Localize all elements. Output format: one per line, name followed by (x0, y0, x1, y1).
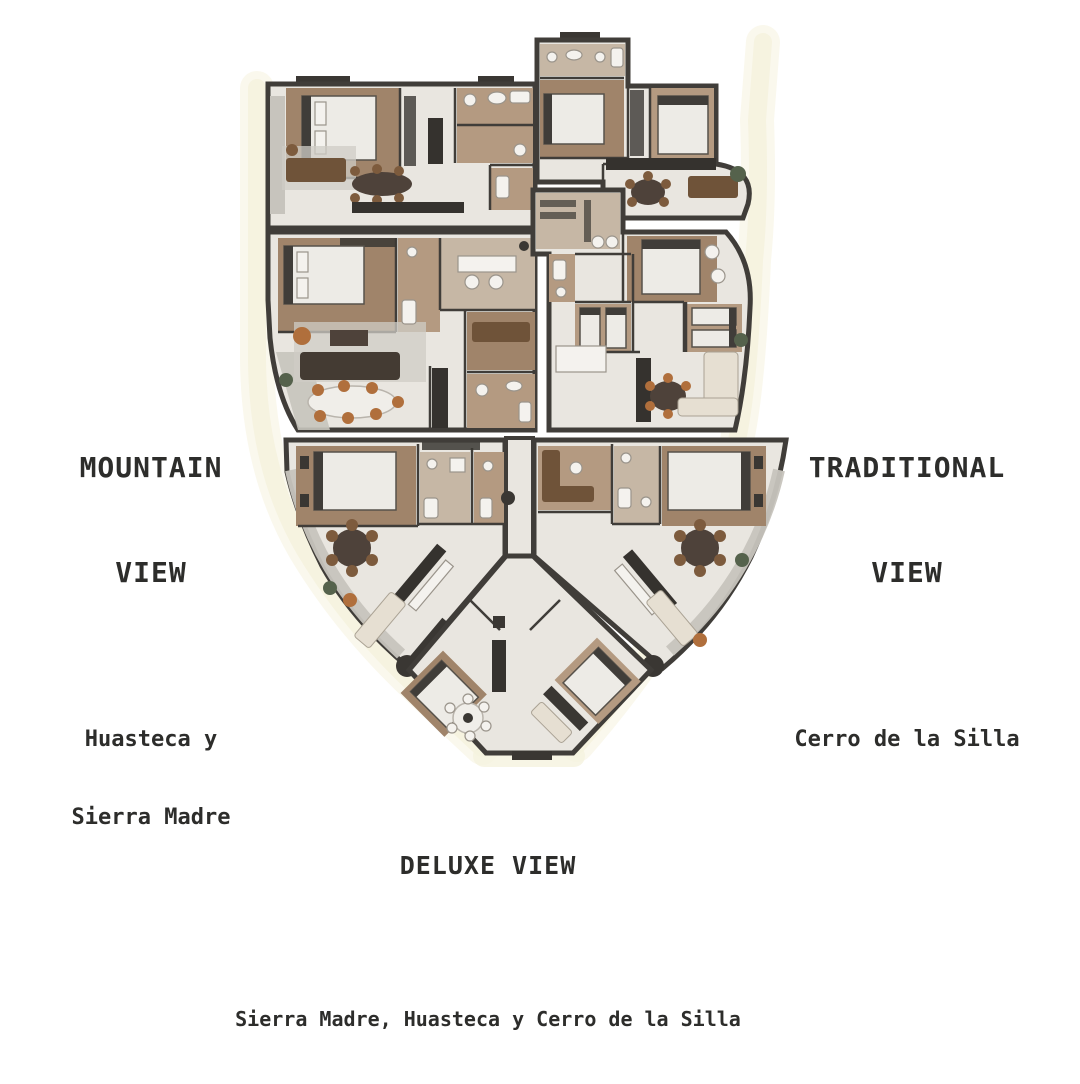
armchair (705, 245, 719, 259)
bed (284, 246, 364, 304)
bed (642, 240, 700, 294)
sofa (688, 176, 738, 198)
kitchen-counter (428, 118, 443, 164)
kitchen-counter (432, 368, 448, 428)
kitchen-cabinets (556, 346, 606, 372)
living-area (293, 322, 426, 382)
mountain-view-title: MOUNTAIN VIEW (16, 380, 286, 660)
kitchen-counter (352, 202, 464, 213)
dining-table (350, 164, 412, 205)
plant (735, 553, 749, 567)
wardrobe (422, 442, 480, 450)
plant (734, 333, 748, 347)
stove (493, 616, 505, 628)
deluxe-view-title: DELUXE VIEW (188, 791, 788, 941)
kitchen-counter (606, 158, 716, 170)
plant (323, 581, 337, 595)
armchair (286, 144, 298, 156)
bed (658, 96, 708, 154)
lounge-chair (693, 633, 707, 647)
kitchen-island (492, 640, 506, 692)
bed (544, 94, 604, 144)
wardrobe (630, 90, 644, 156)
bed (668, 452, 763, 510)
unit-traditional-lower (533, 190, 750, 430)
armchair (711, 269, 725, 283)
unit-mountain-upper (268, 76, 535, 228)
bed (300, 452, 396, 510)
sofa (286, 158, 346, 182)
deluxe-view-subtitle: Sierra Madre, Huasteca y Cerro de la Sil… (188, 954, 788, 1084)
door (501, 491, 515, 505)
unit-mountain-lower (268, 232, 535, 430)
wardrobe (404, 96, 416, 166)
armchair (343, 593, 357, 607)
deluxe-view-label: DELUXE VIEW Sierra Madre, Huasteca y Cer… (188, 791, 788, 1084)
traditional-view-title: TRADITIONAL VIEW (772, 380, 1042, 660)
balcony-edge (512, 751, 552, 760)
floorplan-canvas: MOUNTAIN VIEW Huasteca y Sierra Madre TR… (0, 0, 1080, 890)
traditional-view-subtitle: Cerro de la Silla (772, 675, 1042, 805)
plant (730, 166, 746, 182)
traditional-view-label: TRADITIONAL VIEW Cerro de la Silla (772, 380, 1042, 805)
sofa (472, 322, 530, 342)
